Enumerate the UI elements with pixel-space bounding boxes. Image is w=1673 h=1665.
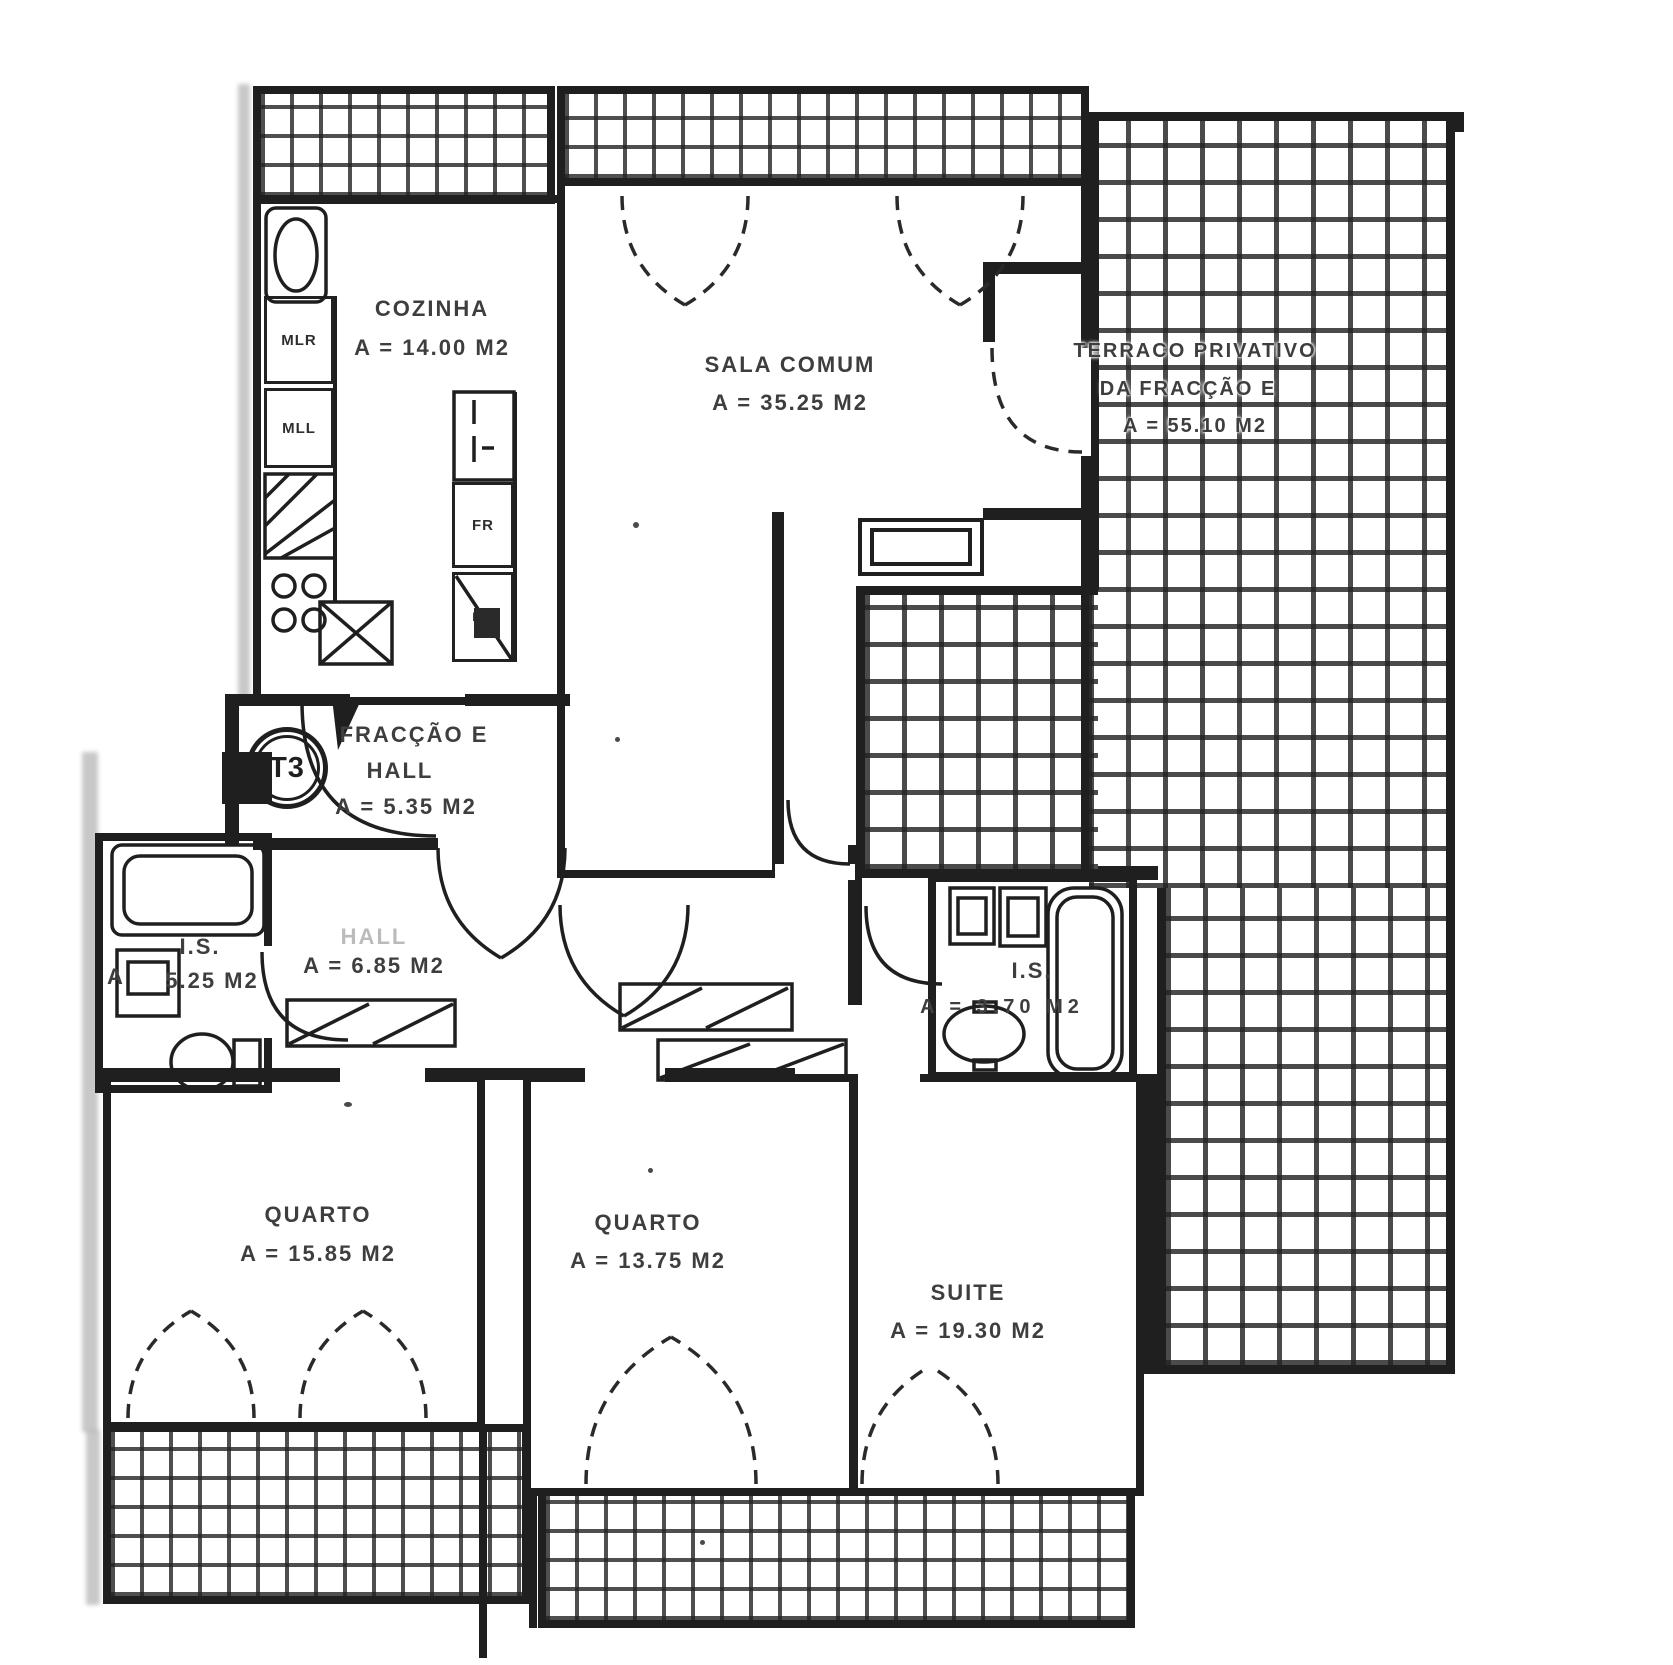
terraco-name: TERRACO PRIVATIVO bbox=[1073, 340, 1316, 363]
quarto1-balcony-door-arc bbox=[191, 1311, 254, 1418]
sala-balcony-door-arc bbox=[685, 196, 748, 305]
wardrobes bbox=[287, 984, 846, 1080]
pantry-shelf-marks bbox=[474, 400, 494, 462]
is-esquerda-area: 5.25 M2 bbox=[165, 968, 259, 994]
bathtub-vertical bbox=[1048, 888, 1122, 1078]
stove-burner bbox=[273, 609, 295, 631]
floor-plan: MLR MLL FR MO T3 COZINHA A = 14.00 M2 SA… bbox=[0, 0, 1673, 1665]
bidet-inner bbox=[958, 898, 986, 934]
hall-double-door-arc bbox=[501, 848, 565, 958]
dishwasher-hatch bbox=[265, 474, 335, 558]
quarto2-balcony-door-arc bbox=[586, 1337, 671, 1484]
kitchen-fixtures bbox=[265, 208, 514, 664]
quarto2-balcony-door-arc bbox=[671, 1337, 756, 1484]
quarto1-balcony-door-arc bbox=[300, 1311, 363, 1418]
plan-linework bbox=[0, 0, 1673, 1665]
terraco-area: A = 55.10 M2 bbox=[1123, 415, 1267, 438]
suite-balcony-door-arc bbox=[930, 1366, 998, 1484]
cozinha-name: COZINHA bbox=[375, 296, 489, 322]
scan-dot bbox=[344, 1102, 352, 1107]
pantry-shelf-box bbox=[454, 392, 514, 480]
terrace-planter bbox=[860, 520, 982, 574]
cozinha-area: A = 14.00 M2 bbox=[354, 335, 510, 361]
toilet-tank bbox=[234, 1040, 260, 1086]
quarto-2-name: QUARTO bbox=[595, 1210, 702, 1236]
corridor-double-door-arc bbox=[560, 905, 624, 1016]
is-esquerda-name: I.S. bbox=[179, 934, 220, 960]
vestibule-door-arc bbox=[788, 800, 850, 864]
bathroom-right-door-arc bbox=[866, 906, 942, 984]
quarto-2-area: A = 13.75 M2 bbox=[570, 1248, 726, 1274]
suite-area: A = 19.30 M2 bbox=[890, 1318, 1046, 1344]
microwave-inner bbox=[474, 608, 500, 638]
wardrobe-box bbox=[287, 1000, 455, 1046]
hall-name: HALL bbox=[341, 924, 408, 950]
suite-balcony-door-arc bbox=[862, 1366, 930, 1484]
wardrobe-box bbox=[658, 1040, 846, 1080]
terraco-subname: DA FRACÇÃO E bbox=[1100, 378, 1277, 401]
unit-type-badge: T3 bbox=[246, 727, 328, 809]
kitchen-sink-cross bbox=[320, 602, 392, 664]
toilet-bowl bbox=[171, 1034, 233, 1090]
fraccao-area: A = 5.35 M2 bbox=[335, 794, 477, 820]
is-direita-area: A = 3.70 M2 bbox=[920, 996, 1084, 1019]
suite-name: SUITE bbox=[931, 1280, 1006, 1306]
sala-balcony-door-arc bbox=[622, 196, 685, 305]
door-arcs bbox=[262, 702, 942, 1040]
hall-area: A = 6.85 M2 bbox=[303, 953, 445, 979]
hall-double-door-arc bbox=[438, 848, 501, 958]
unit-type-label: T3 bbox=[269, 752, 305, 785]
fraccao-subname: HALL bbox=[367, 758, 434, 784]
quarto-1-name: QUARTO bbox=[265, 1202, 372, 1228]
scan-dot bbox=[615, 737, 620, 742]
sala-comum-name: SALA COMUM bbox=[705, 352, 876, 378]
is-esquerda-prefix: A bbox=[107, 964, 125, 990]
fraccao-name: FRACÇÃO E bbox=[340, 722, 489, 748]
sala-balcony-door-arc bbox=[960, 196, 1023, 305]
stove-burner bbox=[303, 575, 325, 597]
is-direita-name: I.S. bbox=[1011, 958, 1052, 984]
sala-terrace-door-arc bbox=[992, 348, 1082, 452]
sink-tab bbox=[974, 1060, 996, 1070]
quarto1-balcony-door-arc bbox=[363, 1311, 426, 1418]
scan-dot bbox=[648, 1168, 653, 1173]
sala-balcony-door-arc bbox=[897, 196, 960, 305]
sala-comum-area: A = 35.25 M2 bbox=[712, 390, 868, 416]
wardrobe-box bbox=[620, 984, 792, 1030]
bathtub-inner bbox=[124, 856, 252, 924]
scan-dot bbox=[633, 522, 639, 528]
sink-basin bbox=[128, 962, 168, 994]
scan-dot bbox=[700, 1540, 705, 1545]
quarto1-balcony-door-arc bbox=[128, 1311, 191, 1418]
quarto-1-area: A = 15.85 M2 bbox=[240, 1241, 396, 1267]
laundry-tub-basin bbox=[275, 219, 317, 291]
stove-burner bbox=[273, 575, 295, 597]
toilet-box-inner bbox=[1008, 898, 1038, 936]
bathtub-vertical-inner bbox=[1057, 897, 1113, 1069]
